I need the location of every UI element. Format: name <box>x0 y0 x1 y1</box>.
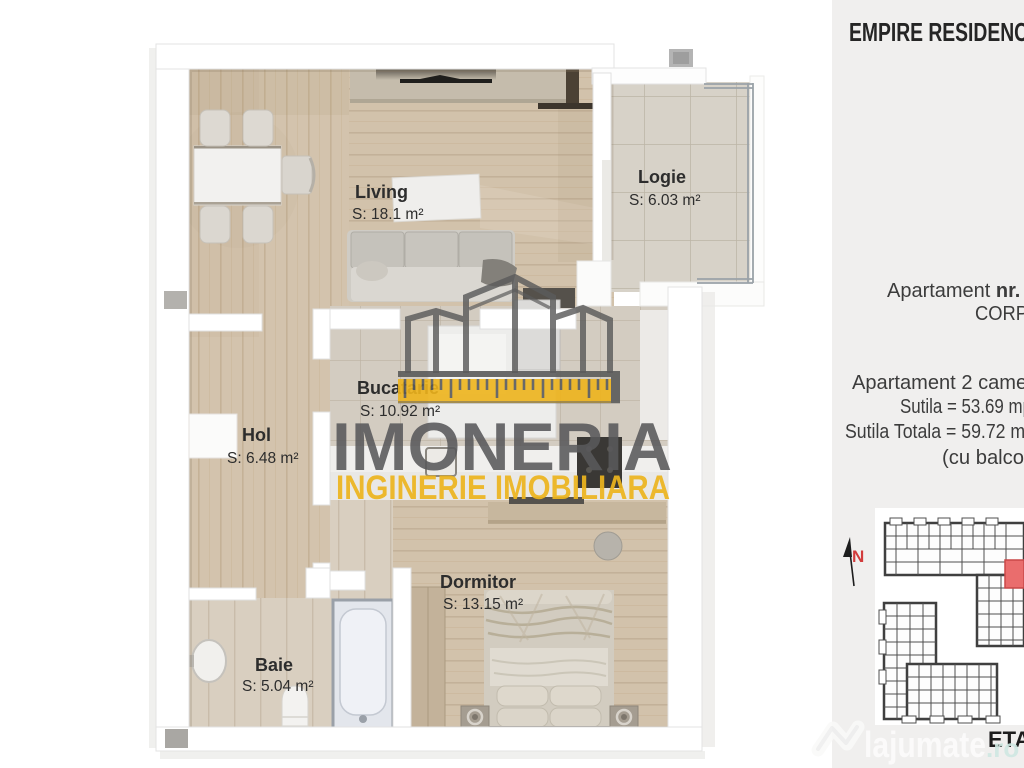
svg-text:Living: Living <box>355 182 408 202</box>
svg-text:Logie: Logie <box>638 167 686 187</box>
svg-text:Apartament 2 camere: Apartament 2 camere <box>852 372 1024 394</box>
svg-text:S: 13.15 m²: S: 13.15 m² <box>443 596 523 613</box>
svg-text:CORP 2: CORP 2 <box>975 303 1024 325</box>
svg-text:Dormitor: Dormitor <box>440 572 516 592</box>
svg-text:lajumate: lajumate <box>864 724 986 765</box>
svg-text:S: 6.03 m²: S: 6.03 m² <box>629 192 701 209</box>
svg-text:N: N <box>852 547 864 566</box>
svg-text:EMPIRE RESIDENCE: EMPIRE RESIDENCE <box>849 17 1024 47</box>
svg-text:Sutila Totala = 59.72 mp: Sutila Totala = 59.72 mp <box>845 421 1024 443</box>
svg-text:(cu balcon): (cu balcon) <box>942 447 1024 469</box>
svg-text:Apartament nr. 4: Apartament nr. 4 <box>887 280 1024 302</box>
svg-text:.ro: .ro <box>986 733 1019 763</box>
svg-text:INGINERIE IMOBILIARA: INGINERIE IMOBILIARA <box>336 469 670 507</box>
svg-text:Hol: Hol <box>242 425 271 445</box>
svg-text:S: 5.04 m²: S: 5.04 m² <box>242 678 314 695</box>
svg-text:S: 18.1 m²: S: 18.1 m² <box>352 206 424 223</box>
svg-text:Sutila = 53.69 mp: Sutila = 53.69 mp <box>900 396 1024 418</box>
svg-text:S: 6.48 m²: S: 6.48 m² <box>227 450 299 467</box>
svg-text:Baie: Baie <box>255 655 293 675</box>
